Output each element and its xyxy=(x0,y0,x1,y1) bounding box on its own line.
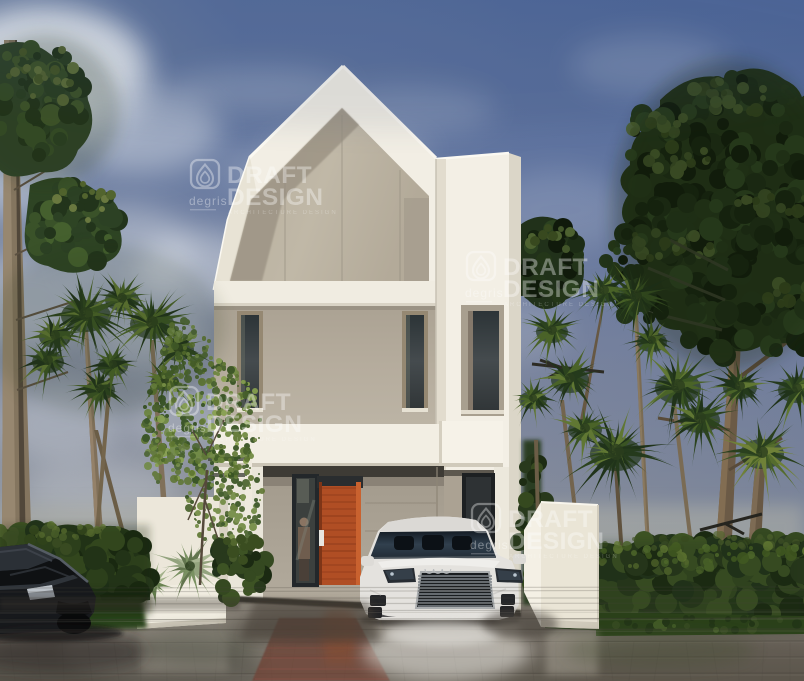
svg-text:DESIGN: DESIGN xyxy=(206,411,302,438)
svg-text:DESIGN: DESIGN xyxy=(227,184,323,211)
svg-text:degris: degris xyxy=(465,286,504,300)
svg-text:ARCHITECTURE DESIGN: ARCHITECTURE DESIGN xyxy=(228,210,338,216)
svg-text:ARCHITECTURE DESIGN: ARCHITECTURE DESIGN xyxy=(509,554,619,560)
svg-text:degris: degris xyxy=(168,421,207,435)
svg-text:degris: degris xyxy=(470,538,509,552)
svg-text:ARCHITECTURE DESIGN: ARCHITECTURE DESIGN xyxy=(207,437,317,443)
svg-text:DESIGN: DESIGN xyxy=(503,276,599,303)
svg-text:degris: degris xyxy=(189,194,228,208)
svg-text:ARCHITECTURE DESIGN: ARCHITECTURE DESIGN xyxy=(504,302,614,308)
svg-text:DESIGN: DESIGN xyxy=(508,528,604,555)
